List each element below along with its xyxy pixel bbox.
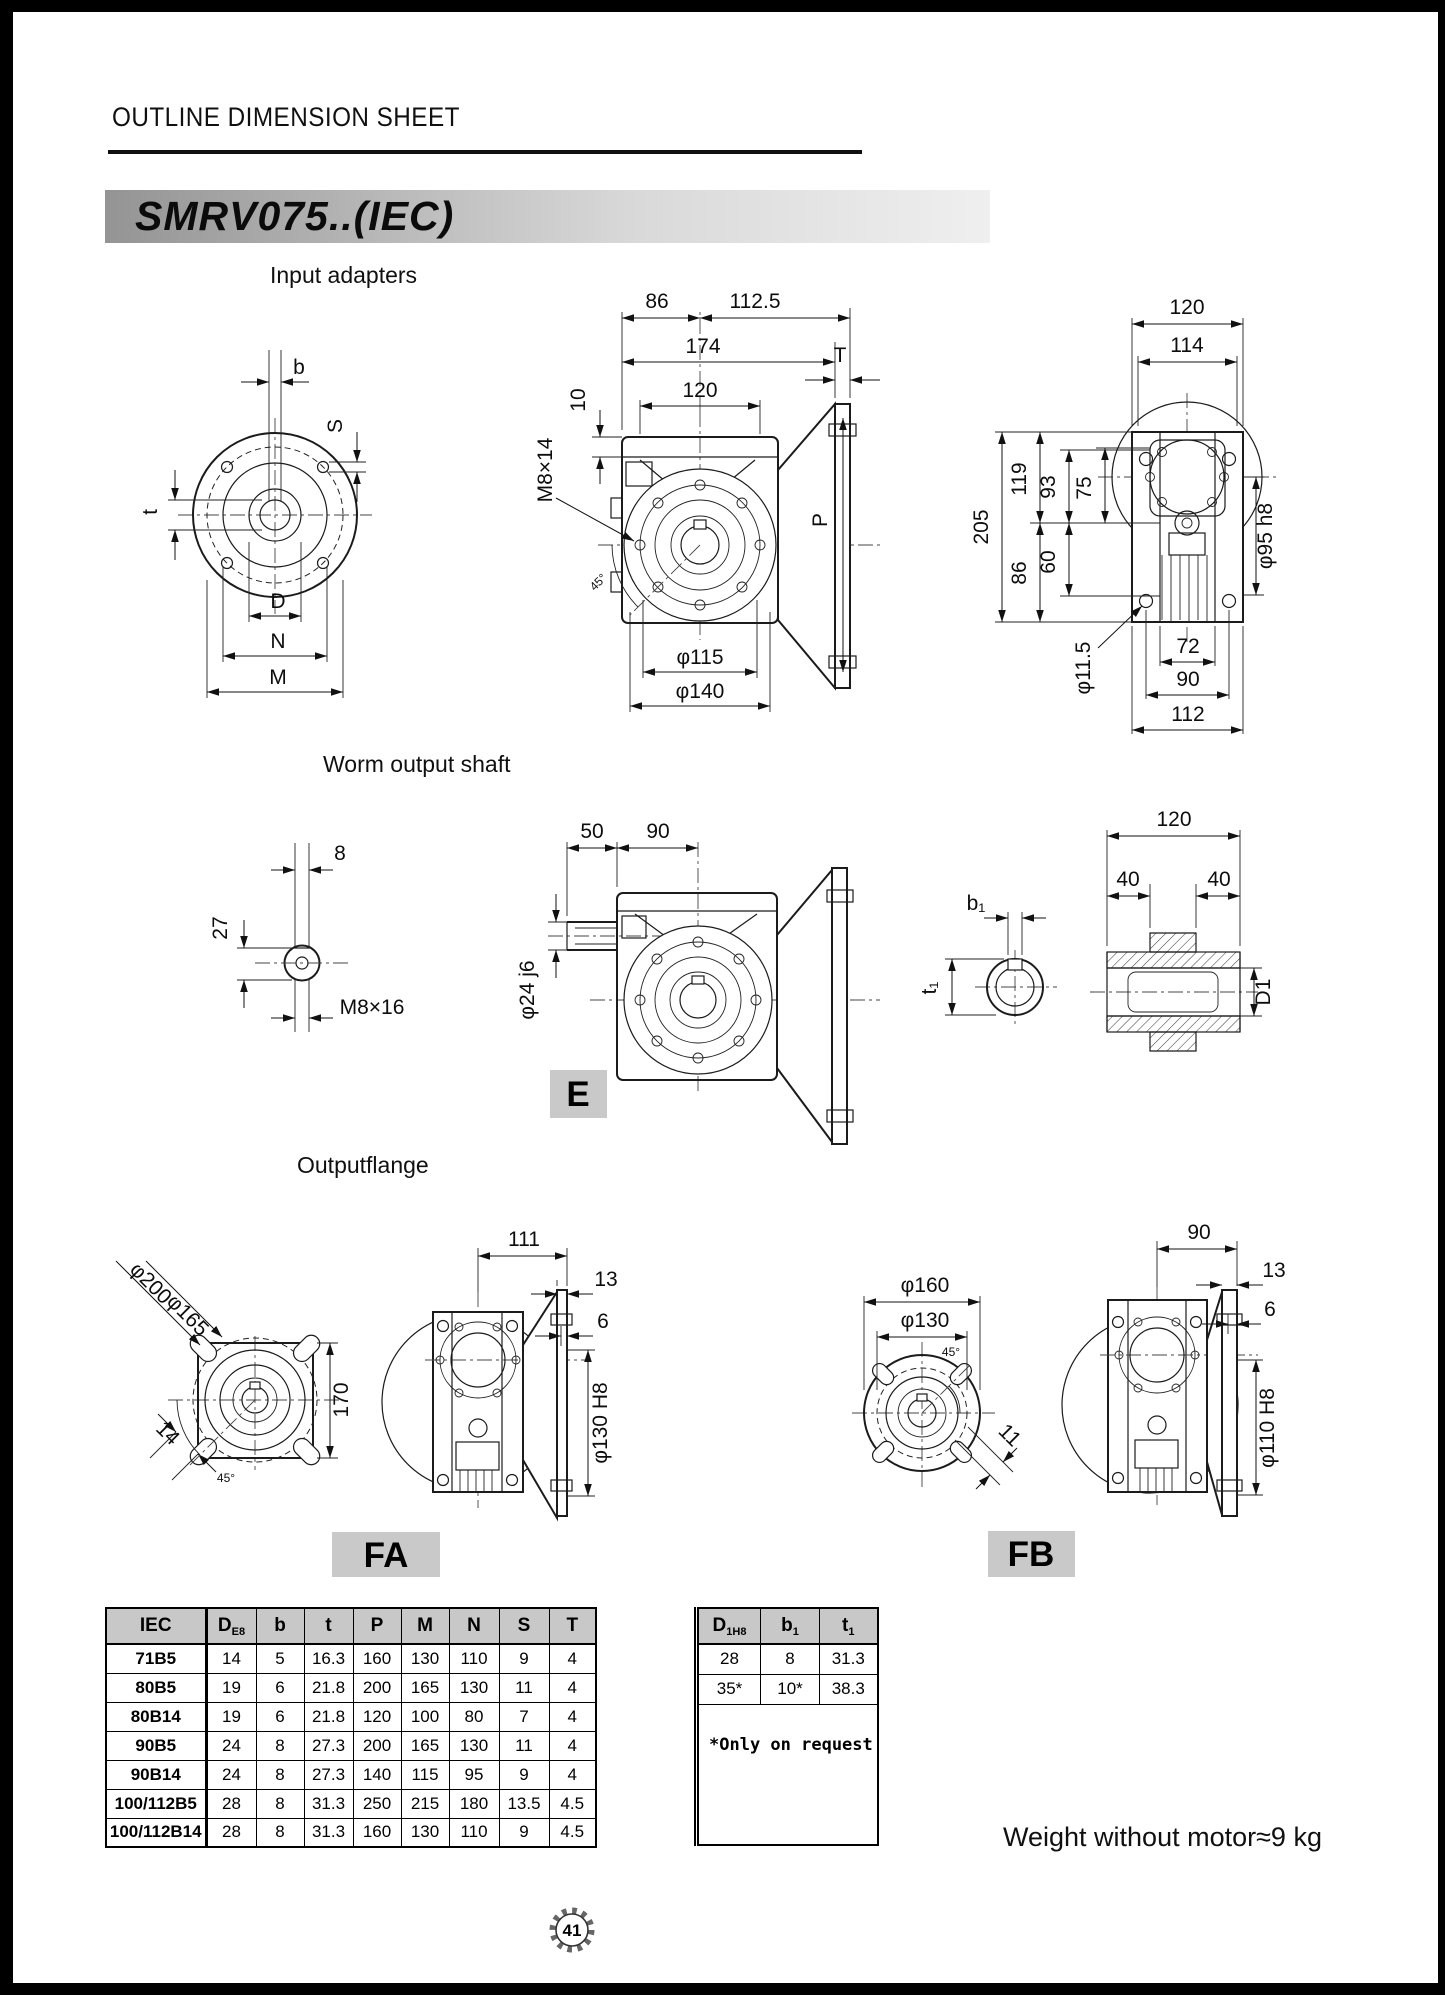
e-tag-label: E	[566, 1075, 589, 1114]
output-flange-fb-side-view: 90 13 6 φ110 H8	[1062, 1221, 1286, 1516]
dim-170: 170	[330, 1382, 353, 1417]
dim-d24j6: φ24 j6	[516, 960, 539, 1019]
dim-d11-5: φ11.5	[1072, 642, 1095, 695]
iec-dimension-table: IEC DE8 b t P M N S T 71B5 145 16.3160 1…	[105, 1607, 597, 1848]
table-row: 71B5 145 16.3160 130110 94	[106, 1644, 596, 1673]
dim-P: P	[809, 513, 832, 527]
dim-90w: 90	[646, 820, 669, 843]
iec-row-label: 100/112B14	[106, 1818, 206, 1847]
dim-d115: φ115	[676, 646, 723, 669]
table-cell: 9	[499, 1760, 549, 1789]
datasheet-page: OUTLINE DIMENSION SHEET SMRV075..(IEC) I…	[0, 0, 1445, 1995]
subtable-header-row: D1H8 b1 t1	[697, 1608, 878, 1644]
dim-8: 8	[334, 842, 346, 865]
header-de8: DE8	[206, 1608, 256, 1644]
header-d1h8: D1H8	[697, 1608, 761, 1644]
table-row: 90B14 248 27.3140 11595 94	[106, 1760, 596, 1789]
page-number: 41	[563, 1921, 582, 1940]
dim-m: M	[269, 666, 287, 689]
dim-174: 174	[685, 335, 720, 358]
dim-d160: φ160	[901, 1274, 950, 1297]
table-cell: 11	[499, 1673, 549, 1702]
table-cell: 31.3	[820, 1644, 878, 1674]
table-cell: 4.5	[549, 1789, 596, 1818]
variant-tag-e: E	[550, 1070, 607, 1118]
dim-205: 205	[970, 509, 993, 544]
dim-13fb: 13	[1262, 1259, 1285, 1282]
dim-d110h8: φ110 H8	[1256, 1388, 1279, 1468]
table-cell: 9	[499, 1818, 549, 1847]
output-flange-square-view: φ200 φ165 170 14 45°	[116, 1258, 353, 1485]
table-cell: 165	[401, 1731, 449, 1760]
table-cell: 13.5	[499, 1789, 549, 1818]
iec-row-label: 71B5	[106, 1644, 206, 1673]
header-n: N	[449, 1608, 499, 1644]
dim-90r: 90	[1176, 668, 1199, 691]
table-cell: 4	[549, 1673, 596, 1702]
variant-tag-fb: FB	[988, 1531, 1075, 1577]
dim-120: 120	[682, 379, 717, 402]
iec-row-label: 80B5	[106, 1673, 206, 1702]
table-cell: 110	[449, 1818, 499, 1847]
table-cell: 21.8	[304, 1702, 353, 1731]
table-cell: 130	[449, 1673, 499, 1702]
table-row: 100/112B5 288 31.3250 215180 13.54.5	[106, 1789, 596, 1818]
table-cell: 120	[353, 1702, 401, 1731]
iec-row-label: 100/112B5	[106, 1789, 206, 1818]
dim-b: b	[293, 356, 305, 379]
table-cell: 28	[206, 1789, 256, 1818]
iec-row-label: 80B14	[106, 1702, 206, 1731]
table-cell: 11	[499, 1731, 549, 1760]
table-cell: 95	[449, 1760, 499, 1789]
dim-112: 112	[1171, 703, 1204, 726]
table-cell: 21.8	[304, 1673, 353, 1702]
dim-120r: 120	[1169, 296, 1204, 319]
dim-60: 60	[1037, 550, 1060, 573]
dim-45sq: 45°	[217, 1471, 235, 1485]
dim-90fb: 90	[1187, 1221, 1210, 1244]
table-cell: 28	[697, 1644, 761, 1674]
table-cell: 31.3	[304, 1818, 353, 1847]
table-cell: 160	[353, 1644, 401, 1673]
dim-72: 72	[1176, 635, 1199, 658]
table-row: 80B14 196 21.8120 10080 74	[106, 1702, 596, 1731]
table-cell: 19	[206, 1673, 256, 1702]
table-cell: 31.3	[304, 1789, 353, 1818]
dim-93: 93	[1037, 475, 1060, 498]
table-cell: 6	[256, 1673, 304, 1702]
dim-45deg: 45°	[587, 571, 610, 594]
dim-114: 114	[1170, 334, 1204, 357]
table-cell: 160	[353, 1818, 401, 1847]
page-number-gear-icon: 41	[553, 1911, 591, 1949]
dim-d95: φ95 h8	[1254, 503, 1277, 569]
header-b: b	[256, 1608, 304, 1644]
dim-D1: D1	[1252, 979, 1275, 1006]
subtable-note-row: *Only on request	[697, 1704, 878, 1845]
dim-s: S	[324, 419, 347, 433]
dim-d130fb: φ130	[901, 1309, 950, 1332]
dim-14: 14	[151, 1417, 184, 1450]
table-cell: 10*	[761, 1674, 820, 1704]
table-cell: 140	[353, 1760, 401, 1789]
variant-tag-fa: FA	[332, 1532, 440, 1577]
only-on-request-note: *Only on request	[697, 1704, 878, 1845]
table-cell: 16.3	[304, 1644, 353, 1673]
table-cell: 8	[256, 1760, 304, 1789]
table-cell: 80	[449, 1702, 499, 1731]
dim-45fb: 45°	[942, 1345, 960, 1359]
dim-40a: 40	[1116, 868, 1139, 891]
table-cell: 215	[401, 1789, 449, 1818]
dim-10: 10	[567, 388, 590, 411]
input-adapter-front-view: b S t D N M	[139, 350, 372, 698]
dim-T: T	[834, 344, 847, 367]
table-cell: 9	[499, 1644, 549, 1673]
table-cell: 250	[353, 1789, 401, 1818]
table-cell: 35*	[697, 1674, 761, 1704]
dim-27: 27	[209, 916, 232, 939]
table-cell: 110	[449, 1644, 499, 1673]
dim-m8x16: M8×16	[340, 996, 405, 1019]
table-cell: 115	[401, 1760, 449, 1789]
table-cell: 8	[256, 1731, 304, 1760]
table-cell: 200	[353, 1673, 401, 1702]
fb-tag-label: FB	[1008, 1535, 1055, 1574]
shaft-dimension-table: D1H8 b1 t1 28 8 31.3 35* 10* 38.3 *Only …	[694, 1607, 879, 1846]
dim-d: D	[270, 590, 285, 613]
table-cell: 6	[256, 1702, 304, 1731]
table-cell: 28	[206, 1818, 256, 1847]
table-cell: 5	[256, 1644, 304, 1673]
header-t: t	[304, 1608, 353, 1644]
input-adapter-side-view: 86 112.5 174 120 10 M8×14 T P 45°	[534, 290, 880, 712]
table-header-row: IEC DE8 b t P M N S T	[106, 1608, 596, 1644]
dim-112-5: 112.5	[730, 290, 781, 313]
iec-row-label: 90B14	[106, 1760, 206, 1789]
table-row: 80B5 196 21.8200 165130 114	[106, 1673, 596, 1702]
table-cell: 4.5	[549, 1818, 596, 1847]
dim-6fa: 6	[597, 1310, 609, 1333]
dim-111: 111	[508, 1228, 540, 1251]
fa-tag-label: FA	[364, 1536, 409, 1575]
dim-m8x14: M8×14	[534, 437, 557, 502]
output-flange-fa-side-view: 111 13 6 φ130 H8	[382, 1228, 618, 1518]
header-b1: b1	[761, 1608, 820, 1644]
table-cell: 27.3	[304, 1760, 353, 1789]
table-cell: 38.3	[820, 1674, 878, 1704]
header-m: M	[401, 1608, 449, 1644]
dim-50: 50	[580, 820, 603, 843]
dim-120s: 120	[1156, 808, 1191, 831]
input-adapter-rear-view: 120 114 205 119 86 93 60 75	[970, 296, 1278, 734]
dim-t1: t₁	[918, 982, 941, 995]
worm-shaft-bore-views: b₁ t₁ 120 40 40 D1	[918, 808, 1275, 1051]
header-t1: t1	[820, 1608, 878, 1644]
table-cell: 200	[353, 1731, 401, 1760]
table-cell: 180	[449, 1789, 499, 1818]
table-cell: 130	[449, 1731, 499, 1760]
dim-40b: 40	[1207, 868, 1230, 891]
table-cell: 8	[761, 1644, 820, 1674]
table-cell: 4	[549, 1760, 596, 1789]
dim-t: t	[139, 509, 162, 515]
dim-11: 11	[994, 1420, 1026, 1452]
header-tt: T	[549, 1608, 596, 1644]
dim-13fa: 13	[594, 1268, 617, 1291]
output-flange-fb-front-view: φ160 φ130 45° 11	[852, 1274, 1025, 1489]
dim-d130h8: φ130 H8	[589, 1382, 612, 1463]
table-cell: 14	[206, 1644, 256, 1673]
table-cell: 24	[206, 1760, 256, 1789]
subtable-row: 35* 10* 38.3	[697, 1674, 878, 1704]
weight-note: Weight without motor≈9 kg	[1003, 1822, 1322, 1853]
table-cell: 7	[499, 1702, 549, 1731]
table-cell: 27.3	[304, 1731, 353, 1760]
table-cell: 130	[401, 1818, 449, 1847]
subtable-row: 28 8 31.3	[697, 1644, 878, 1674]
dim-75: 75	[1073, 476, 1096, 499]
dim-d140: φ140	[676, 680, 725, 703]
header-iec: IEC	[106, 1608, 206, 1644]
table-cell: 4	[549, 1731, 596, 1760]
dim-n: N	[270, 630, 285, 653]
table-cell: 19	[206, 1702, 256, 1731]
table-cell: 100	[401, 1702, 449, 1731]
dim-6fb: 6	[1264, 1298, 1276, 1321]
iec-row-label: 90B5	[106, 1731, 206, 1760]
table-cell: 8	[256, 1818, 304, 1847]
worm-shaft-end-view: 8 27 M8×16	[209, 842, 404, 1032]
table-cell: 165	[401, 1673, 449, 1702]
table-cell: 4	[549, 1644, 596, 1673]
table-cell: 24	[206, 1731, 256, 1760]
header-s: S	[499, 1608, 549, 1644]
table-cell: 4	[549, 1702, 596, 1731]
table-cell: 8	[256, 1789, 304, 1818]
dim-119: 119	[1008, 462, 1031, 495]
table-row: 100/112B14 288 31.3160 130110 94.5	[106, 1818, 596, 1847]
dim-86: 86	[645, 290, 668, 313]
dim-b1: b₁	[967, 892, 986, 915]
header-p: P	[353, 1608, 401, 1644]
table-row: 90B5 248 27.3200 165130 114	[106, 1731, 596, 1760]
dim-86r: 86	[1008, 561, 1031, 584]
table-cell: 130	[401, 1644, 449, 1673]
